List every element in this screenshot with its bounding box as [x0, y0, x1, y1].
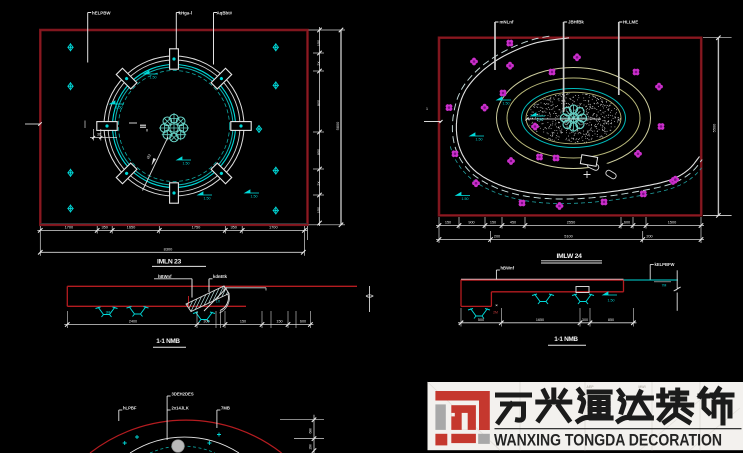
svg-text:kELPBFW: kELPBFW — [655, 262, 675, 267]
svg-text:1.50: 1.50 — [204, 197, 211, 201]
svg-text:7M: 7M — [662, 284, 667, 288]
svg-text:900: 900 — [468, 221, 474, 225]
svg-text:150: 150 — [490, 221, 496, 225]
svg-text:hLPBF: hLPBF — [123, 406, 137, 411]
svg-text:1.50: 1.50 — [183, 162, 190, 166]
svg-text:350: 350 — [230, 225, 237, 230]
svg-text:850: 850 — [317, 149, 321, 155]
svg-text:600: 600 — [624, 221, 630, 225]
svg-text:600: 600 — [300, 320, 306, 324]
svg-text:300: 300 — [582, 318, 588, 322]
svg-text:1700: 1700 — [269, 225, 278, 230]
svg-text:350: 350 — [101, 225, 108, 230]
svg-text:1.50: 1.50 — [462, 197, 469, 201]
svg-text:hBWnf: hBWnf — [158, 274, 172, 279]
svg-text:850: 850 — [608, 318, 614, 322]
svg-text:5100: 5100 — [564, 235, 572, 239]
svg-text:kdnEtk: kdnEtk — [213, 274, 228, 279]
svg-text:IMLN 23: IMLN 23 — [157, 258, 181, 265]
svg-text:150: 150 — [240, 320, 246, 324]
svg-text:6M: 6M — [309, 429, 313, 434]
svg-text:5800: 5800 — [335, 121, 340, 130]
svg-text:5500: 5500 — [712, 123, 717, 132]
svg-text:1650: 1650 — [536, 318, 544, 322]
svg-text:150: 150 — [317, 40, 321, 46]
svg-text:1-1 NMB: 1-1 NMB — [554, 336, 578, 343]
svg-text:hBWnf: hBWnf — [501, 266, 515, 271]
svg-text:300: 300 — [203, 320, 209, 324]
svg-text:2M: 2M — [493, 311, 498, 315]
svg-text:800: 800 — [317, 100, 321, 106]
svg-text:36: 36 — [97, 133, 101, 137]
svg-text:2400: 2400 — [129, 320, 137, 324]
svg-text:200: 200 — [494, 235, 500, 239]
svg-text:AqBbt#: AqBbt# — [217, 11, 233, 16]
svg-text:1X: 1X — [216, 300, 221, 304]
svg-text:450: 450 — [510, 221, 516, 225]
svg-text:150: 150 — [276, 320, 282, 324]
svg-text:2X: 2X — [317, 181, 321, 186]
svg-text:3M: 3M — [106, 311, 111, 315]
svg-text:WANXING TONGDA DECORATION: WANXING TONGDA DECORATION — [494, 432, 722, 450]
svg-text:1: 1 — [426, 107, 428, 111]
svg-text:1-1 NMB: 1-1 NMB — [156, 338, 180, 345]
svg-text:1.50: 1.50 — [116, 106, 123, 110]
svg-text:1.50: 1.50 — [503, 102, 510, 106]
svg-text:500: 500 — [478, 318, 484, 322]
svg-text:1700: 1700 — [65, 225, 74, 230]
svg-text:2M: 2M — [309, 445, 313, 450]
svg-text:3DEH2DES: 3DEH2DES — [172, 392, 194, 397]
svg-text:JBHfBk: JBHfBk — [568, 20, 584, 25]
svg-text:1.50: 1.50 — [150, 76, 157, 80]
svg-text:MWI: MWI — [638, 385, 645, 389]
svg-text:1650: 1650 — [127, 225, 136, 230]
svg-text:150: 150 — [445, 221, 451, 225]
svg-text:AEP: AEP — [586, 385, 594, 389]
svg-text:2X: 2X — [317, 61, 321, 66]
svg-text:hELPBW: hELPBW — [92, 11, 111, 16]
svg-text:1750: 1750 — [192, 225, 201, 230]
svg-text:1.50: 1.50 — [608, 299, 615, 303]
svg-text:IMLW 24: IMLW 24 — [556, 253, 582, 260]
svg-text:HLLME: HLLME — [623, 20, 638, 25]
svg-text:kHga-l: kHga-l — [179, 11, 192, 16]
svg-text:2x14JLK: 2x14JLK — [172, 406, 189, 411]
svg-text:1.50: 1.50 — [251, 195, 258, 199]
svg-text:200: 200 — [646, 235, 652, 239]
svg-text:7MB: 7MB — [221, 406, 230, 411]
svg-text:8300: 8300 — [164, 246, 173, 251]
svg-text:150: 150 — [317, 207, 321, 213]
svg-text:1500: 1500 — [668, 221, 676, 225]
svg-text:1.50: 1.50 — [537, 118, 544, 122]
svg-text:2550: 2550 — [567, 221, 575, 225]
svg-text:1.50: 1.50 — [476, 138, 483, 142]
svg-text:mNLnf: mNLnf — [500, 20, 514, 25]
